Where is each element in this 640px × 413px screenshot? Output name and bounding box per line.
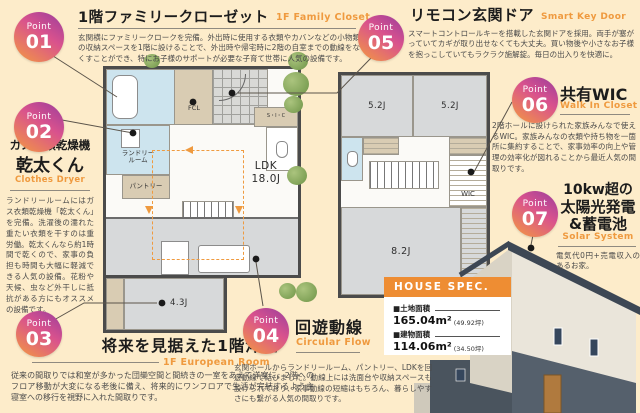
room-52j-a: 5.2J: [341, 75, 413, 137]
tree-icon: [284, 96, 303, 113]
point-07-title-line3: &蓄電池: [556, 213, 640, 234]
point-02-body: ランドリールームにはガス衣類乾燥機「乾太くん」を完備。洗濯後の濡れた重たい衣類を…: [6, 196, 94, 316]
house-spec-header: HOUSE SPEC.: [384, 277, 511, 297]
point-01-body: 玄関横にファミリークロークを完備。外出時に使用する衣類やカバンなどの小物類の収納…: [78, 33, 360, 64]
room-52j-b-label: 5.2J: [441, 101, 459, 111]
toilet-2f-icon: [347, 151, 358, 167]
point-01-title-en: 1F Family Closet: [276, 12, 370, 23]
tree-icon: [296, 282, 317, 302]
room-52j-b: 5.2J: [413, 75, 487, 137]
point-04-divider: [296, 352, 360, 353]
point-05-badge: Point 05: [358, 15, 404, 61]
point-01-title: 1階ファミリークローゼット: [78, 6, 269, 27]
floorplan-1f-western: [103, 275, 227, 333]
point-02-divider: [10, 190, 90, 191]
land-area-label: ■土地面積: [393, 303, 430, 314]
point-03-number: 03: [26, 329, 52, 349]
closet-2f-left: [363, 137, 399, 155]
point-07-divider: [558, 246, 636, 247]
point-01-badge: Point 01: [14, 12, 64, 62]
room-closet-43j: [106, 278, 124, 330]
point-06-divider: [560, 114, 630, 115]
ldk-label: LDK 18.0J: [238, 160, 294, 186]
room-family-closet: FCL: [174, 69, 214, 125]
point-01-number: 01: [26, 32, 52, 52]
point-07-body: 電気代0円+売電収入のあるお家。: [556, 251, 640, 272]
house-door: [544, 375, 561, 413]
tree-icon: [283, 72, 309, 96]
closet-2f-right: [449, 137, 487, 155]
point-03-divider: [32, 362, 159, 363]
building-area-label-row: ■建物面積: [393, 329, 502, 340]
point-04-title-en: Circular Flow: [296, 337, 371, 348]
house-spec-box: ■土地面積 165.04m² (49.92坪) ■建物面積 114.06m² (…: [384, 297, 511, 355]
point-07-title-en: Solar System: [556, 232, 640, 242]
point-06-number: 06: [522, 95, 548, 115]
point-03-badge: Point 03: [16, 311, 62, 357]
washer-icon: [121, 129, 140, 148]
point-05-number: 05: [368, 33, 394, 53]
point-02-title-en: Clothes Dryer: [4, 175, 96, 185]
fcl-label: FCL: [188, 105, 200, 112]
tree-icon: [287, 166, 307, 185]
point-02-badge: Point 02: [14, 102, 64, 152]
room-bathroom: [106, 69, 176, 125]
land-area-value: 165.04m²: [393, 314, 452, 327]
land-area-label-row: ■土地面積: [393, 303, 502, 314]
point-04-body: 玄関ホールからランドリールーム、パントリー、LDKを回遊動線で結びました。動線上…: [234, 363, 432, 404]
wic-label: WIC: [461, 190, 475, 198]
point-07-number: 07: [522, 209, 548, 229]
house-window: [554, 328, 562, 345]
point-05-title: リモコン玄関ドア: [410, 4, 534, 25]
land-area-rule: [435, 310, 500, 311]
point-02-number: 02: [26, 122, 52, 142]
room-wic: WIC: [449, 155, 487, 207]
room-toilet-2f: [341, 137, 363, 181]
stairs-2f: [369, 161, 439, 189]
circular-flow-path: [152, 150, 244, 260]
building-area-tsubo: (34.50坪): [454, 343, 484, 353]
ldk-size: 18.0J: [238, 173, 294, 186]
point-04-number: 04: [253, 326, 279, 346]
tree-icon: [279, 283, 296, 299]
room-52j-a-label: 5.2J: [368, 101, 386, 111]
point-04-title: 回遊動線: [295, 314, 363, 338]
toilet-icon: [276, 141, 288, 158]
building-area-value-row: 114.06m² (34.50坪): [393, 340, 502, 353]
ldk-name: LDK: [238, 160, 294, 173]
point-04-badge: Point 04: [243, 308, 289, 354]
point-05-title-en: Smart Key Door: [541, 12, 626, 22]
building-area-label: ■建物面積: [393, 329, 430, 340]
flyer-canvas: Point 01 1階ファミリークローゼット 1F Family Closet …: [0, 0, 640, 413]
point-06-badge: Point 06: [512, 77, 558, 123]
house-window: [456, 369, 465, 381]
house-annex: [430, 360, 470, 413]
building-area-value: 114.06m²: [393, 340, 452, 353]
sic-label: S・I・C: [267, 114, 285, 120]
point-06-body: 2階ホールに設けられた家族みんなで使えるWIC。家族みんなの衣類や持ち物を一箇所…: [492, 121, 636, 174]
land-area-value-row: 165.04m² (49.92坪): [393, 314, 502, 327]
point-07-badge: Point 07: [512, 191, 558, 237]
room-43j-label: 4.3J: [170, 298, 188, 308]
point-06-title-en: Walk In Closet: [560, 101, 637, 111]
land-area-tsubo: (49.92坪): [454, 317, 484, 327]
house-window: [590, 339, 598, 356]
point-05-body: スマートコントロールキーを搭載した玄関ドアを採用。両手が塞がっていてカギが取り出…: [408, 29, 634, 60]
building-area-rule: [435, 336, 500, 337]
bathtub-icon: [112, 75, 138, 119]
door-arc-icon: [219, 74, 246, 101]
point-01-divider: [78, 28, 356, 29]
point-02-title: 乾太くん: [4, 151, 96, 176]
